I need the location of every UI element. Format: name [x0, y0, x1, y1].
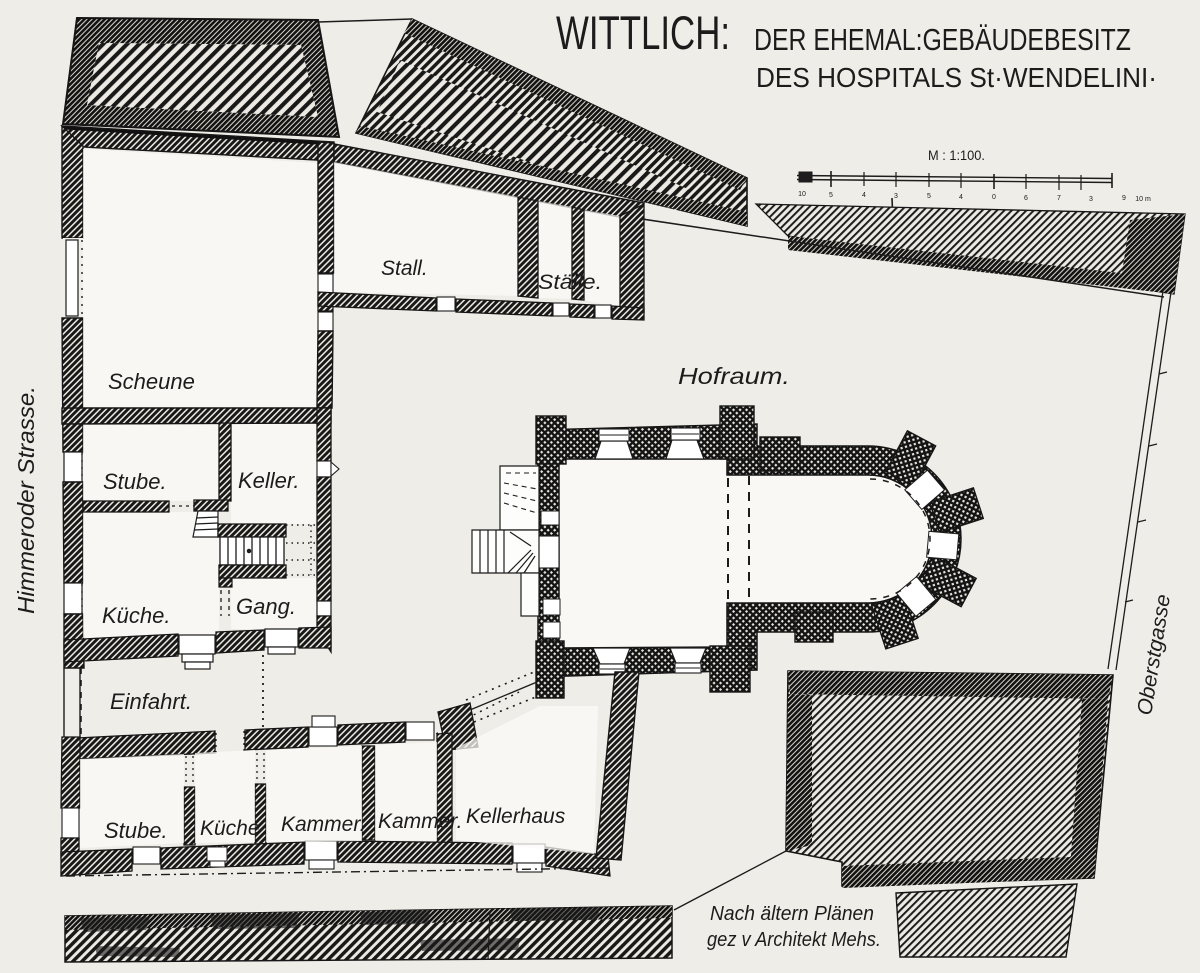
- svg-text:10: 10: [798, 191, 806, 198]
- svg-text:7: 7: [1057, 195, 1061, 202]
- svg-text:6: 6: [1024, 195, 1028, 202]
- svg-text:Ställe.: Ställe.: [538, 271, 602, 294]
- svg-text:Stall.: Stall.: [381, 257, 428, 280]
- svg-text:4: 4: [959, 194, 963, 201]
- svg-text:Küche.: Küche.: [102, 603, 171, 628]
- svg-text:3: 3: [894, 193, 898, 200]
- svg-text:Gang.: Gang.: [236, 594, 296, 619]
- svg-text:5: 5: [829, 192, 833, 199]
- svg-text:10 m: 10 m: [1135, 196, 1151, 203]
- svg-text:DER EHEMAL:GEBÄUDEBESITZ: DER EHEMAL:GEBÄUDEBESITZ: [754, 22, 1131, 57]
- svg-text:Stube.: Stube.: [103, 469, 167, 494]
- svg-text:Himmeroder Strasse.: Himmeroder Strasse.: [13, 386, 39, 614]
- svg-text:gez v Architekt Mehs.: gez v Architekt Mehs.: [707, 929, 881, 951]
- svg-text:Einfahrt.: Einfahrt.: [110, 689, 192, 714]
- svg-text:5: 5: [927, 193, 931, 200]
- svg-text:Nach ältern Plänen: Nach ältern Plänen: [710, 903, 874, 925]
- svg-text:M : 1:100.: M : 1:100.: [928, 147, 985, 163]
- svg-text:Stube.: Stube.: [104, 818, 168, 843]
- svg-text:4: 4: [862, 192, 866, 199]
- svg-text:WITTLICH:: WITTLICH:: [556, 6, 730, 59]
- svg-text:Kammer.: Kammer.: [281, 813, 365, 836]
- svg-text:3: 3: [1089, 196, 1093, 203]
- svg-text:Kellerhaus: Kellerhaus: [466, 805, 566, 828]
- svg-text:Scheune: Scheune: [108, 369, 195, 394]
- svg-text:0: 0: [992, 194, 996, 201]
- svg-text:Keller.: Keller.: [238, 468, 300, 493]
- svg-text:Kammer.: Kammer.: [378, 810, 462, 833]
- svg-text:DES HOSPITALS St·WENDELINI·: DES HOSPITALS St·WENDELINI·: [756, 62, 1157, 93]
- svg-text:Hofraum.: Hofraum.: [678, 363, 790, 389]
- svg-text:Küche: Küche: [200, 817, 260, 840]
- svg-text:9: 9: [1122, 195, 1126, 202]
